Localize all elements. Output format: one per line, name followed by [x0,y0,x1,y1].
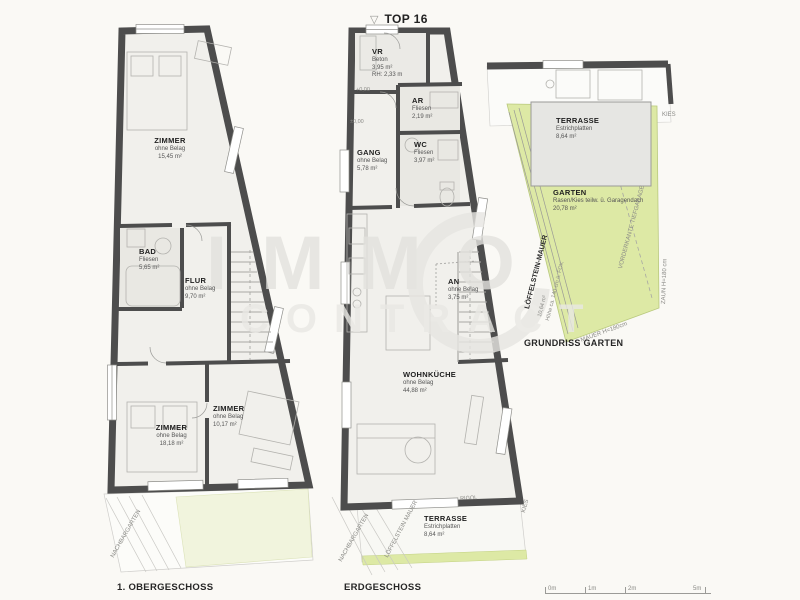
room-label-og-zimmer-bottom-left: ZIMMER ohne Belag 18,18 m² [134,423,209,448]
room-label-eg-gang: GANG ohne Belag 5,78 m² [357,148,387,173]
room-label-garten-terrasse: TERRASSE Estrichplatten 8,64 m² [556,116,599,141]
room-label-eg-wc: WC Fliesen 3,97 m² [414,140,434,165]
caption-grundriss-garten: GRUNDRISS GARTEN [524,338,623,348]
room-label-eg-wohnkueche: WOHNKÜCHE ohne Belag 44,88 m² [403,370,456,395]
room-label-og-bad: BAD Fliesen 5,65 m² [139,247,159,272]
room-label-eg-terrasse: TERRASSE Estrichplatten 8,64 m² [424,514,467,539]
sheet-header: ▽ TOP 16 [370,12,428,26]
room-label-eg-vr: VR Beton 3,95 m² RH: 2,33 m [372,47,402,80]
room-label-eg-an: AN ohne Belag 3,75 m² [448,277,478,302]
plan-drawing [0,0,800,600]
triangle-down-icon: ▽ [370,13,378,26]
og-floorplan [108,25,310,491]
room-label-eg-ar: AR Fliesen 2,19 m² [412,96,432,121]
scale-label-2m: 2m [628,586,636,592]
scale-label-5m: 5m [693,586,701,592]
scale-tick [705,587,706,593]
annotation-garten-kies: KIES [662,112,676,118]
room-label-garten-garten: GARTEN Rasen/Kies teilw. ü. Garagendach … [553,188,643,213]
room-label-og-flur: FLUR ohne Belag 9,70 m² [185,276,215,301]
room-label-og-zimmer-bottom-right: ZIMMER ohne Belag 10,17 m² [213,404,244,429]
top-label: TOP 16 [384,12,427,26]
floorplan-sheet: IMMO CONTRACT ▽ TOP 16 ZIMMER ohne Belag… [0,0,800,600]
scale-label-1m: 1m [588,586,596,592]
og-outside-area [104,488,313,572]
caption-obergeschoss: 1. OBERGESCHOSS [117,582,213,593]
caption-erdgeschoss: ERDGESCHOSS [344,582,421,593]
annotation-eg-rigol: RIGOL [460,495,477,502]
scale-tick [625,587,626,593]
level-marker-1: +0,00 [356,87,370,93]
scale-tick [545,587,546,593]
level-marker-2: ±0,00 [350,119,364,125]
room-label-og-zimmer-top: ZIMMER ohne Belag 15,45 m² [130,136,210,161]
scale-label-0m: 0m [548,586,556,592]
scale-tick [585,587,586,593]
scale-bar: 0m 1m 2m 5m [545,580,711,594]
